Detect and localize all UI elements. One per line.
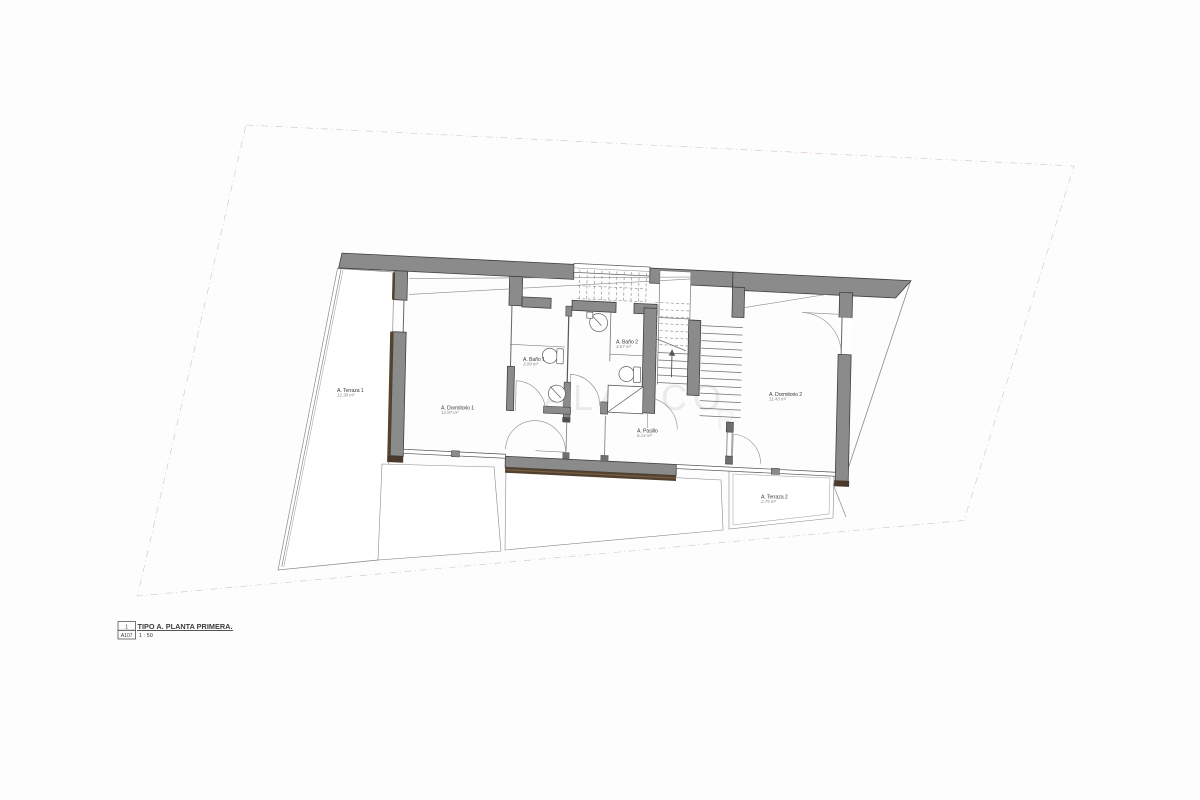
svg-text:TIPO A. PLANTA PRIMERA.: TIPO A. PLANTA PRIMERA.	[138, 622, 233, 631]
svg-text:12.97 m²: 12.97 m²	[441, 410, 459, 415]
svg-text:12.38 m²: 12.38 m²	[337, 393, 355, 398]
svg-text:3.09 m²: 3.09 m²	[523, 362, 538, 367]
svg-text:11.43 m²: 11.43 m²	[769, 397, 787, 402]
svg-text:3.67 m²: 3.67 m²	[616, 344, 631, 349]
svg-text:6.14 m²: 6.14 m²	[637, 433, 652, 438]
svg-text:A107: A107	[121, 633, 133, 639]
svg-text:1 : 50: 1 : 50	[139, 633, 153, 639]
svg-text:1: 1	[125, 624, 128, 630]
svg-text:2.75 m²: 2.75 m²	[760, 499, 776, 504]
